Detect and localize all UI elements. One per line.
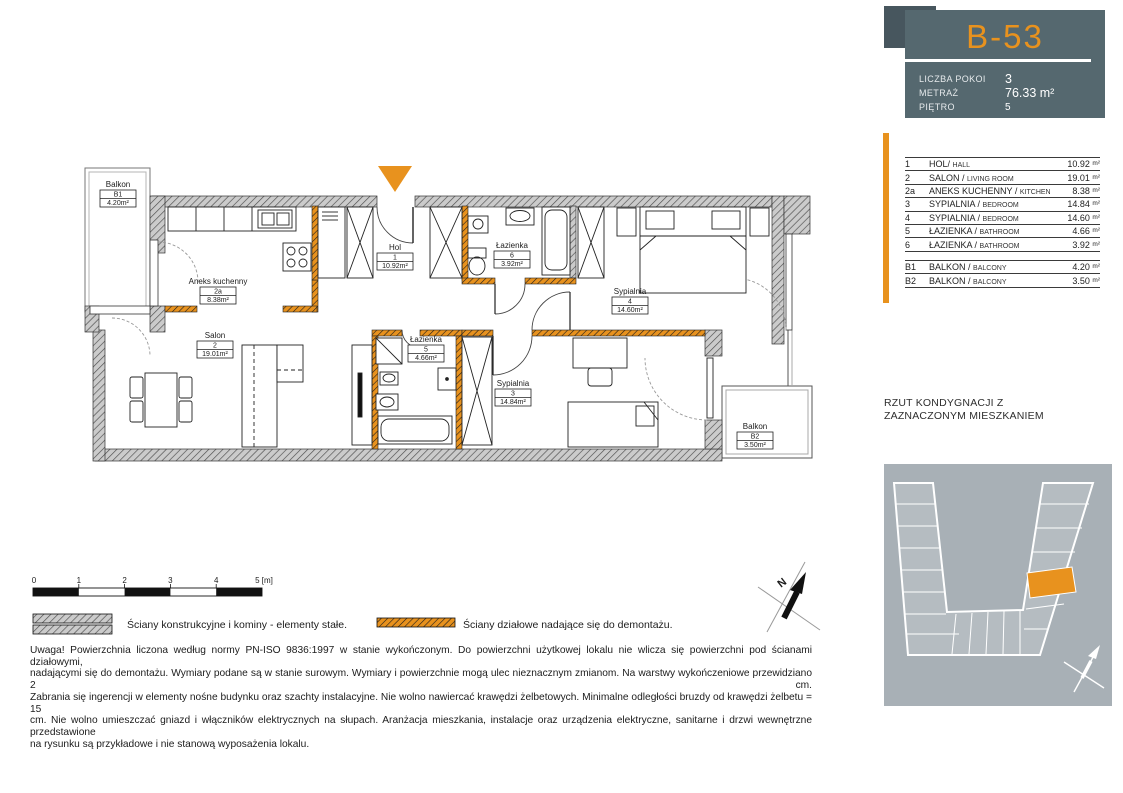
svg-text:5 [m]: 5 [m] bbox=[255, 576, 273, 585]
room-label-aneks-kuchenny: Aneks kuchenny 2a 8.38m² bbox=[189, 277, 248, 304]
svg-text:14.84m²: 14.84m² bbox=[500, 399, 526, 406]
svg-text:2: 2 bbox=[213, 343, 217, 350]
svg-text:4.66m²: 4.66m² bbox=[415, 355, 437, 362]
svg-text:3.92m²: 3.92m² bbox=[501, 261, 523, 268]
room-label-sypialnia-4: Sypialnia 4 14.60m² bbox=[612, 287, 648, 314]
card-row-area: METRAŻ 76.33 m² bbox=[919, 86, 1097, 100]
highlighted-unit bbox=[1027, 567, 1076, 598]
svg-text:Salon: Salon bbox=[205, 331, 225, 340]
map-north-icon bbox=[1064, 645, 1104, 692]
table-row: B2 BALKON / BALCONY 3.50 m² bbox=[905, 273, 1100, 286]
unit-id: B-53 bbox=[905, 18, 1105, 56]
svg-text:B2: B2 bbox=[751, 434, 760, 441]
svg-text:3: 3 bbox=[511, 391, 515, 398]
accent-bar bbox=[883, 133, 889, 303]
room-label-lazienka-6: Łazienka 6 3.92m² bbox=[494, 241, 530, 268]
entrance-arrow bbox=[378, 166, 412, 192]
table-row: 5 ŁAZIENKA / BATHROOM 4.66 m² bbox=[905, 224, 1100, 237]
svg-text:3.50m²: 3.50m² bbox=[744, 442, 766, 449]
building-key-map bbox=[884, 464, 1112, 706]
legend-partition-swatch bbox=[377, 618, 455, 627]
svg-text:6: 6 bbox=[510, 253, 514, 260]
svg-text:2a: 2a bbox=[214, 289, 222, 296]
svg-text:Łazienka: Łazienka bbox=[410, 335, 443, 344]
table-row: B1 BALKON / BALCONY 4.20 m² bbox=[905, 260, 1100, 273]
legend: Ściany konstrukcyjne i kominy - elementy… bbox=[33, 614, 673, 634]
card-row-floor: PIĘTRO 5 bbox=[919, 100, 1097, 114]
svg-text:4: 4 bbox=[214, 576, 219, 585]
svg-text:Łazienka: Łazienka bbox=[496, 241, 529, 250]
svg-text:14.60m²: 14.60m² bbox=[617, 307, 643, 314]
svg-text:Balkon: Balkon bbox=[743, 422, 767, 431]
svg-text:Ściany konstrukcyjne i kominy: Ściany konstrukcyjne i kominy - elementy… bbox=[127, 618, 347, 631]
room-area-table: 1 HOL/ HALL 10.92 m² 2 SALON / LIVING RO… bbox=[905, 157, 1100, 252]
table-row: 2a ANEKS KUCHENNY / KITCHEN 8.38 m² bbox=[905, 184, 1100, 197]
table-row: 2 SALON / LIVING ROOM 19.01 m² bbox=[905, 170, 1100, 183]
room-label-sypialnia-3: Sypialnia 3 14.84m² bbox=[495, 379, 531, 406]
svg-text:19.01m²: 19.01m² bbox=[202, 351, 228, 358]
svg-text:N: N bbox=[775, 576, 789, 590]
svg-text:B1: B1 bbox=[114, 192, 123, 199]
disclaimer-text: Uwaga! Powierzchnia liczona według normy… bbox=[30, 645, 812, 750]
apartment-floor-plan: Balkon B1 4.20m² Aneks kuchenny 2a 8.38m… bbox=[0, 0, 880, 640]
legend-structural-swatch bbox=[33, 614, 112, 634]
svg-text:5: 5 bbox=[424, 347, 428, 354]
scale-bar: 0 1 2 3 4 5 [m] bbox=[32, 576, 273, 596]
unit-info-card: B-53 LICZBA POKOI 3 METRAŻ 76.33 m² PIĘT… bbox=[905, 10, 1105, 118]
furniture bbox=[130, 207, 769, 447]
card-row-rooms: LICZBA POKOI 3 bbox=[919, 72, 1097, 86]
svg-text:4.20m²: 4.20m² bbox=[107, 200, 129, 207]
key-map-caption: RZUT KONDYGNACJI Z ZAZNACZONYM MIESZKANI… bbox=[884, 397, 1114, 422]
svg-text:Ściany działowe nadające się d: Ściany działowe nadające się do demontaż… bbox=[463, 618, 673, 631]
svg-text:1: 1 bbox=[393, 255, 397, 262]
card-divider bbox=[905, 59, 1091, 62]
north-arrow-icon: N bbox=[758, 562, 820, 632]
svg-text:Hol: Hol bbox=[389, 243, 401, 252]
room-label-lazienka-5: Łazienka 5 4.66m² bbox=[408, 335, 444, 362]
svg-text:4: 4 bbox=[628, 299, 632, 306]
svg-text:2: 2 bbox=[122, 576, 127, 585]
svg-text:Balkon: Balkon bbox=[106, 180, 130, 189]
svg-text:3: 3 bbox=[168, 576, 173, 585]
svg-text:Aneks kuchenny: Aneks kuchenny bbox=[189, 277, 248, 286]
svg-text:1: 1 bbox=[77, 576, 82, 585]
table-row: 3 SYPIALNIA / BEDROOM 14.84 m² bbox=[905, 197, 1100, 210]
svg-text:8.38m²: 8.38m² bbox=[207, 297, 229, 304]
svg-text:10.92m²: 10.92m² bbox=[382, 263, 408, 270]
table-row: 1 HOL/ HALL 10.92 m² bbox=[905, 157, 1100, 170]
floor-plan-sheet: Balkon B1 4.20m² Aneks kuchenny 2a 8.38m… bbox=[0, 0, 1123, 793]
table-row: 4 SYPIALNIA / BEDROOM 14.60 m² bbox=[905, 211, 1100, 224]
room-label-salon: Salon 2 19.01m² bbox=[197, 331, 233, 358]
balcony-area-table: B1 BALKON / BALCONY 4.20 m² B2 BALKON / … bbox=[905, 260, 1100, 288]
svg-text:Sypialnia: Sypialnia bbox=[614, 287, 647, 296]
svg-text:Sypialnia: Sypialnia bbox=[497, 379, 530, 388]
table-row: 6 ŁAZIENKA / BATHROOM 3.92 m² bbox=[905, 237, 1100, 250]
room-label-hol: Hol 1 10.92m² bbox=[377, 243, 413, 270]
svg-text:0: 0 bbox=[32, 576, 37, 585]
